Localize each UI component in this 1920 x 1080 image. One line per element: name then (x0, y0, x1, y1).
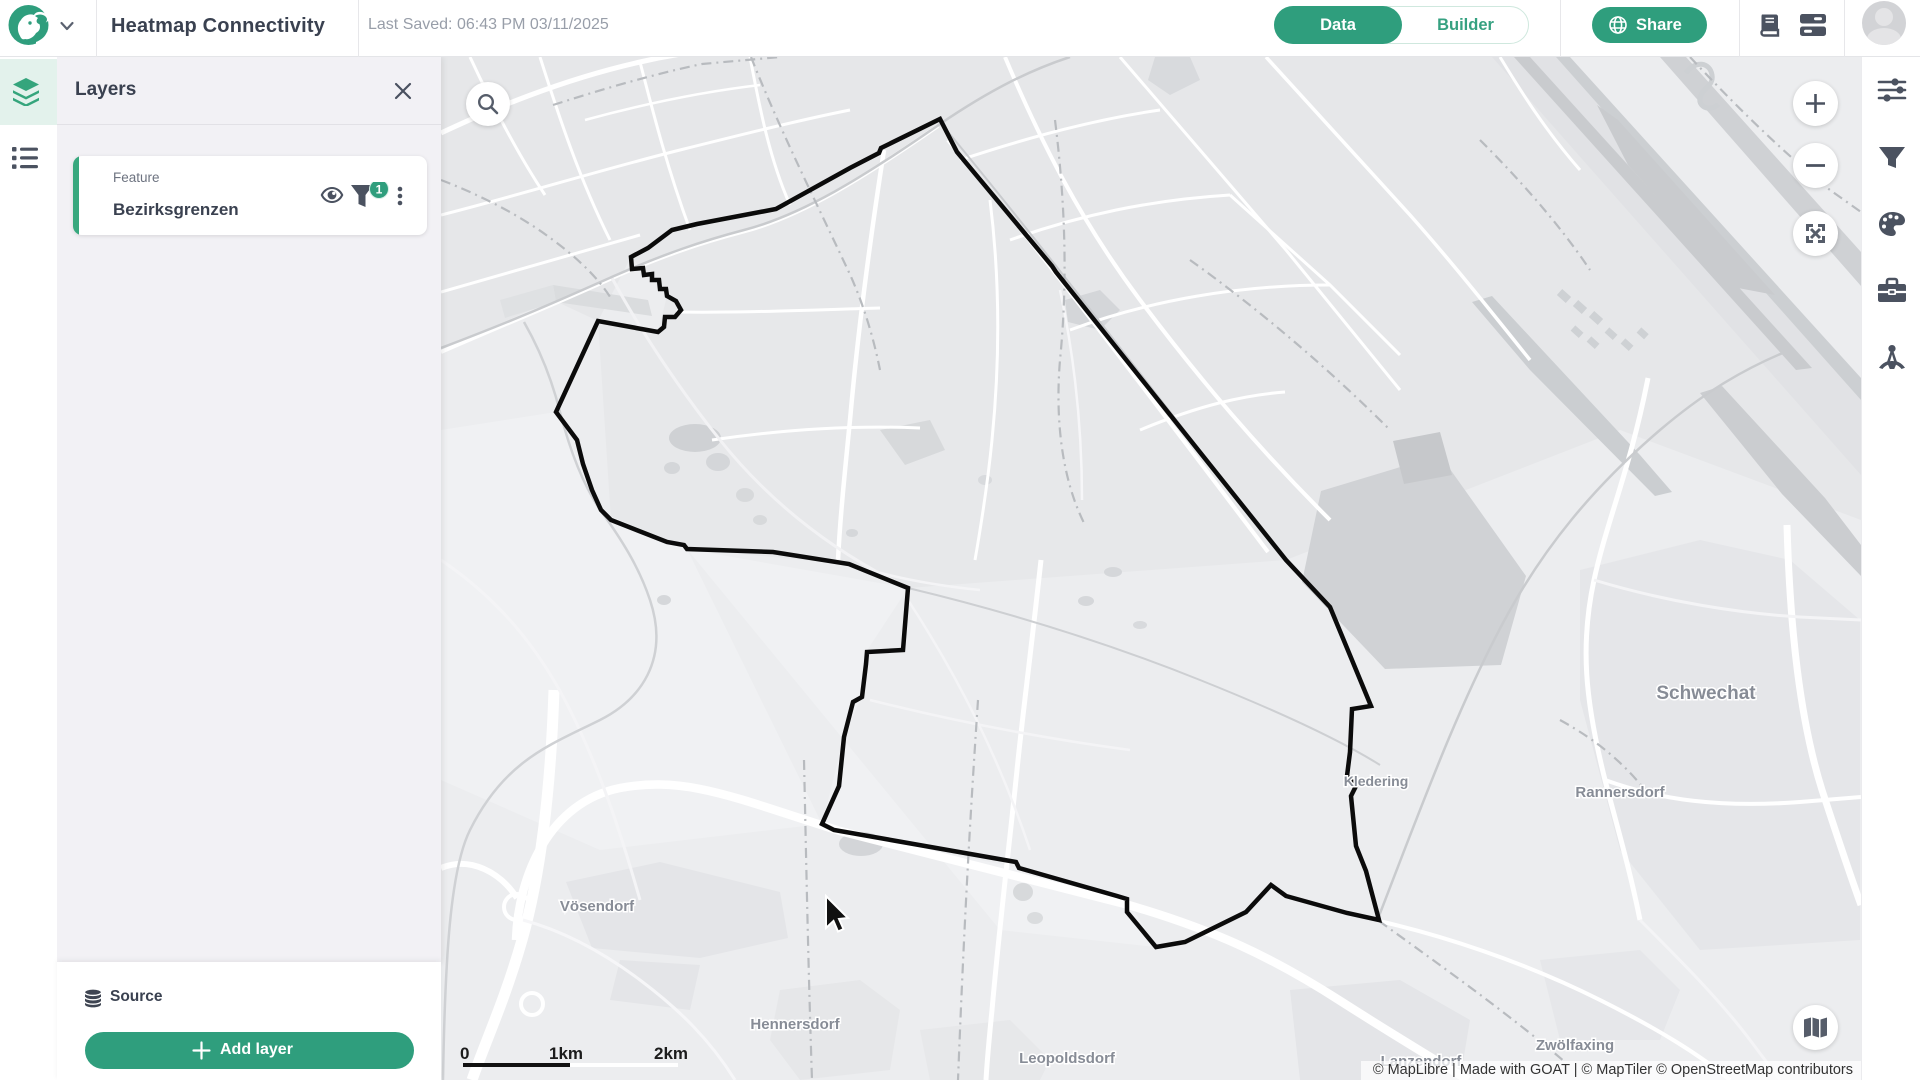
svg-text:Hennersdorf: Hennersdorf (750, 1016, 840, 1033)
svg-text:Zwölfaxing: Zwölfaxing (1536, 1037, 1614, 1054)
svg-text:Rannersdorf: Rannersdorf (1575, 784, 1665, 801)
svg-text:1: 1 (376, 183, 383, 197)
svg-text:Schwechat: Schwechat (1656, 683, 1756, 704)
svg-text:Kledering: Kledering (1344, 773, 1409, 789)
svg-text:Leopoldsdorf: Leopoldsdorf (1019, 1050, 1116, 1067)
svg-text:Vösendorf: Vösendorf (560, 898, 635, 915)
